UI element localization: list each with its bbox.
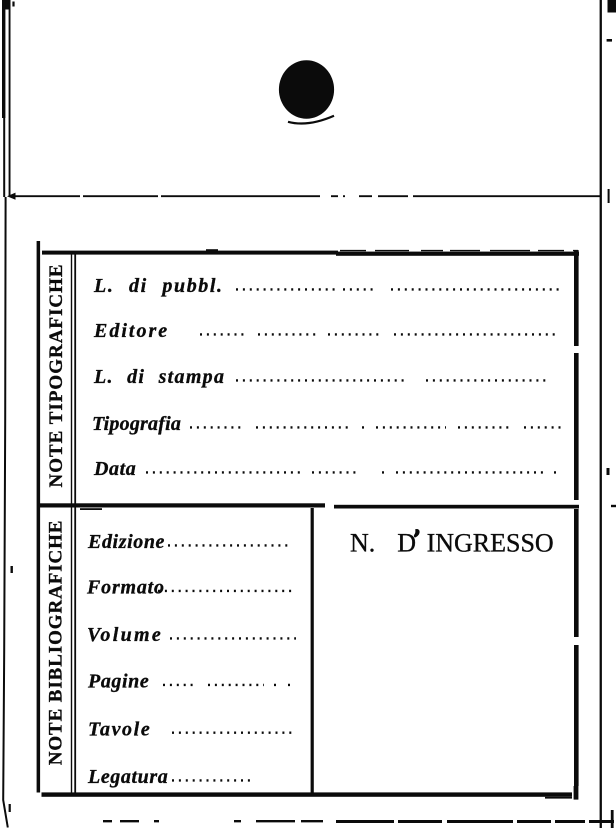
svg-text:NOTE BIBLIOGRAFICHE: NOTE BIBLIOGRAFICHE bbox=[46, 520, 67, 766]
svg-text:NOTE TIPOGRAFICHE: NOTE TIPOGRAFICHE bbox=[46, 263, 67, 487]
svg-text:Tipografia: Tipografia bbox=[92, 413, 181, 435]
svg-text:Editore: Editore bbox=[93, 320, 169, 342]
svg-text:Legatura: Legatura bbox=[87, 766, 168, 788]
svg-text:Edizione: Edizione bbox=[87, 531, 165, 553]
svg-text:L. di stampa: L. di stampa bbox=[93, 366, 225, 388]
svg-text:Tavole: Tavole bbox=[88, 718, 151, 740]
svg-text:Volume: Volume bbox=[87, 624, 163, 646]
svg-text:L. di pubbl.: L. di pubbl. bbox=[93, 275, 224, 297]
svg-text:Data: Data bbox=[93, 458, 136, 480]
svg-text:Formato: Formato bbox=[86, 577, 165, 599]
svg-text:Pagine: Pagine bbox=[87, 671, 149, 693]
